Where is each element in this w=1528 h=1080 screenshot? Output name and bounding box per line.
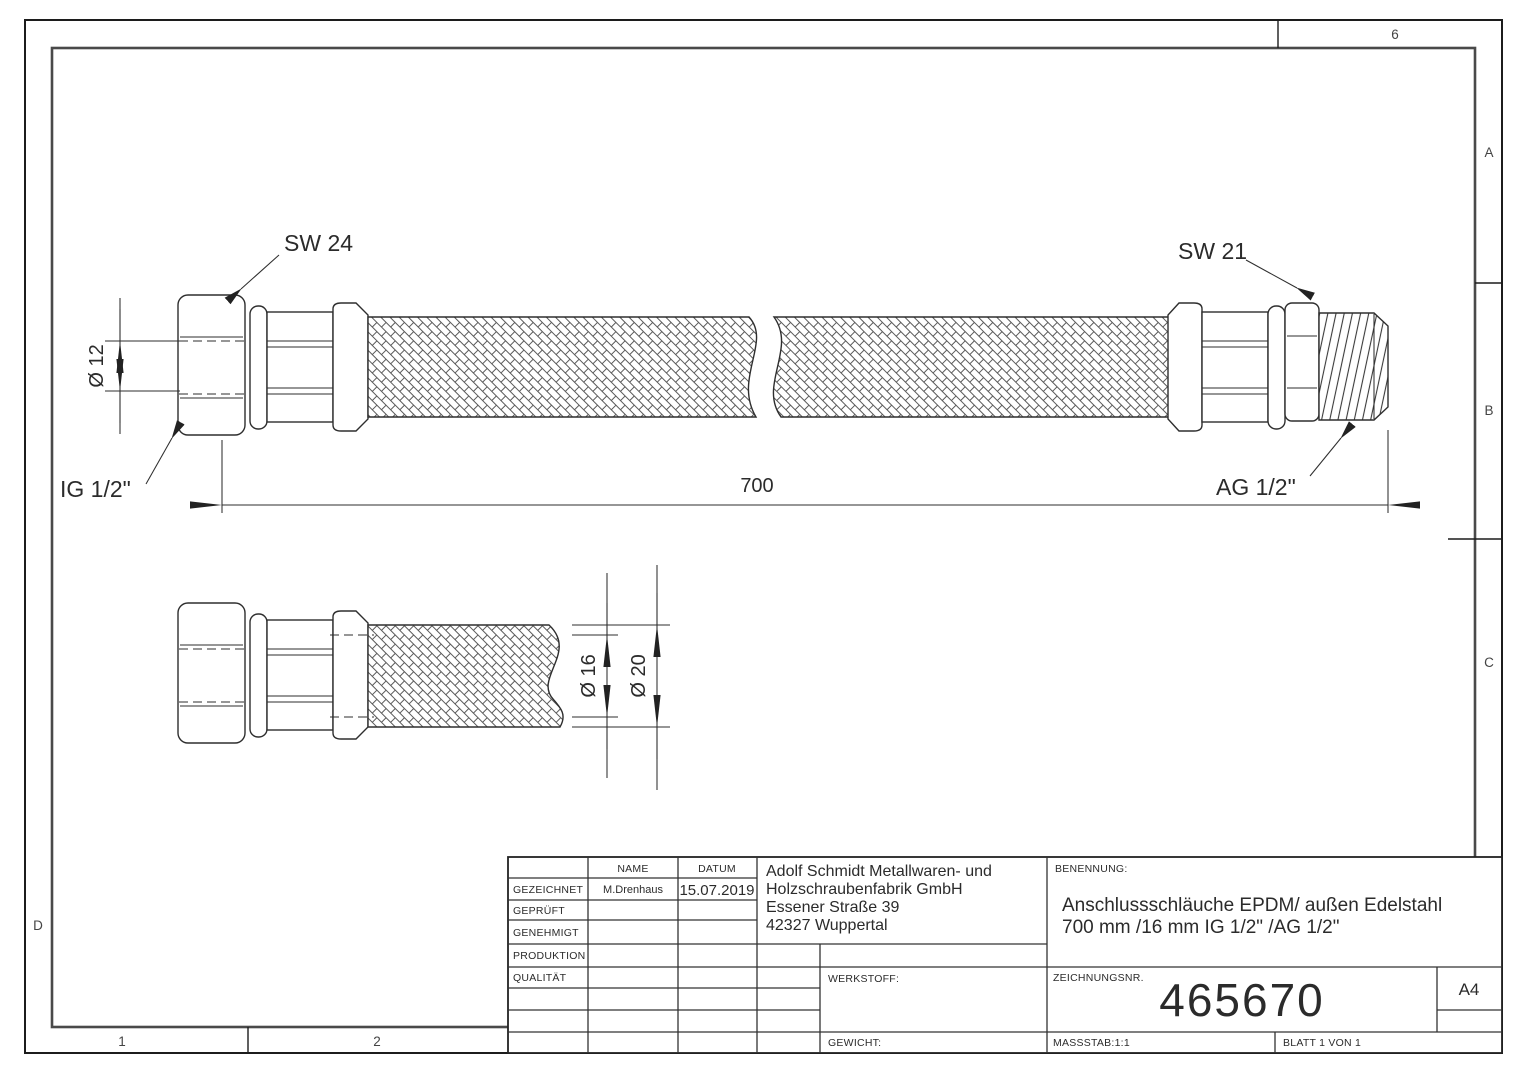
drawing-sheet: 6 A B C D 1 2 xyxy=(0,0,1528,1080)
company-line2: Holzschraubenfabrik GmbH xyxy=(766,881,963,898)
gewicht-label: GEWICHT: xyxy=(828,1037,881,1049)
sleeve-flare xyxy=(1168,303,1202,431)
dim-dia12-text: Ø 12 xyxy=(86,344,108,387)
zone-label-1: 1 xyxy=(118,1034,126,1049)
dim-700-text: 700 xyxy=(740,475,773,497)
dim-dia16-text: Ø 16 xyxy=(578,654,600,697)
header-name: NAME xyxy=(617,863,648,875)
hex-nut xyxy=(1285,303,1319,421)
braid-segment-1 xyxy=(368,317,757,417)
gezeichnet-name: M.Drenhaus xyxy=(603,884,663,896)
drawing-number: 465670 xyxy=(1159,974,1325,1026)
benennung-label: BENENNUNG: xyxy=(1055,863,1128,875)
technical-drawing-svg: 6 A B C D 1 2 xyxy=(0,0,1528,1080)
braid-segment-2 xyxy=(773,317,1170,417)
ig-text: IG 1/2" xyxy=(60,476,131,502)
benennung-line1: Anschlussschläuche EPDM/ außen Edelstahl xyxy=(1062,895,1442,916)
zone-label-2: 2 xyxy=(373,1034,381,1049)
zone-label-a: A xyxy=(1484,145,1493,160)
header-datum: DATUM xyxy=(698,863,736,875)
braid-torn xyxy=(368,625,563,727)
row-label-qualitaet: QUALITÄT xyxy=(513,972,567,984)
gezeichnet-datum: 15.07.2019 xyxy=(679,882,754,899)
left-fitting xyxy=(178,295,368,435)
zone-label-6: 6 xyxy=(1391,27,1399,42)
right-fitting xyxy=(1168,303,1388,431)
zone-label-d: D xyxy=(33,918,43,933)
dim-dia20-text: Ø 20 xyxy=(628,654,650,697)
blatt: BLATT 1 VON 1 xyxy=(1283,1037,1361,1049)
swivel-ring xyxy=(250,306,267,429)
zeichnungsnr-label: ZEICHNUNGSNR. xyxy=(1053,972,1144,984)
row-label-geprueft: GEPRÜFT xyxy=(513,905,565,917)
paper-format: A4 xyxy=(1459,980,1480,999)
row-label-gezeichnet: GEZEICHNET xyxy=(513,884,584,896)
company-line4: 42327 Wuppertal xyxy=(766,917,888,934)
werkstoff-label: WERKSTOFF: xyxy=(828,973,899,985)
title-block: NAME DATUM GEZEICHNET GEPRÜFT GENEHMIGT … xyxy=(508,857,1502,1053)
crimp-sleeve xyxy=(267,312,333,422)
crimp-sleeve xyxy=(1202,312,1268,422)
zone-label-c: C xyxy=(1484,655,1494,670)
row-label-produktion: PRODUKTION xyxy=(513,950,586,962)
benennung-line2: 700 mm /16 mm IG 1/2" /AG 1/2" xyxy=(1062,917,1339,938)
sw21-text: SW 21 xyxy=(1178,238,1247,264)
company-line1: Adolf Schmidt Metallwaren- und xyxy=(766,863,992,880)
company-line3: Essener Straße 39 xyxy=(766,899,900,916)
ag-text: AG 1/2" xyxy=(1216,474,1296,500)
threaded-stud xyxy=(1319,313,1388,420)
row-label-genehmigt: GENEHMIGT xyxy=(513,927,579,939)
hex-nut xyxy=(178,295,245,435)
massstab: MASSSTAB:1:1 xyxy=(1053,1037,1130,1049)
sw24-text: SW 24 xyxy=(284,230,353,256)
sleeve-flare xyxy=(333,303,368,431)
swivel-ring xyxy=(1268,306,1285,429)
zone-label-b: B xyxy=(1484,403,1493,418)
